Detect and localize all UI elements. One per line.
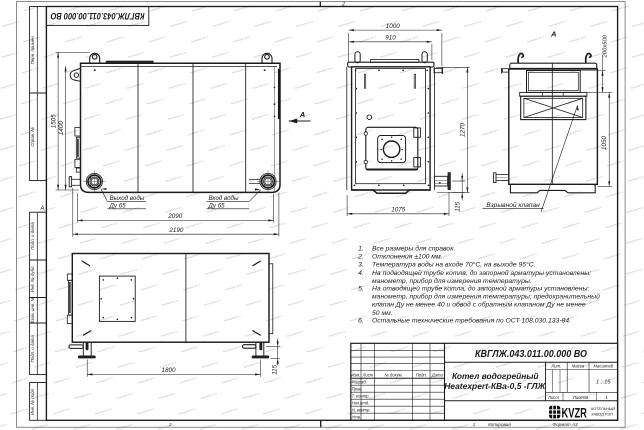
svg-text:KVZR: KVZR <box>562 405 588 420</box>
svg-text:1.: 1. <box>358 246 364 253</box>
svg-text:Нач.отд.: Нач.отд. <box>352 401 370 406</box>
svg-text:2.: 2. <box>357 254 364 261</box>
svg-text:3.: 3. <box>358 262 364 269</box>
svg-text:Пров.: Пров. <box>352 387 363 392</box>
svg-text:Перв. примен.: Перв. примен. <box>30 35 35 64</box>
svg-text:2: 2 <box>168 422 172 427</box>
svg-text:Остальные технические требован: Остальные технические требования по ОСТ … <box>372 316 571 324</box>
svg-text:4.: 4. <box>358 270 364 277</box>
svg-text:Все размеры для справок.: Все размеры для справок. <box>372 245 455 253</box>
svg-text:Формат А3: Формат А3 <box>552 422 578 427</box>
svg-text:Изм.: Изм. <box>351 373 360 378</box>
svg-text:2090: 2090 <box>167 213 183 220</box>
svg-text:910: 910 <box>385 35 396 42</box>
svg-text:1505: 1505 <box>51 114 58 129</box>
svg-text:КВГЛЖ.043.011.00.000 ВО: КВГЛЖ.043.011.00.000 ВО <box>51 11 145 21</box>
svg-text:Вход воды: Вход воды <box>209 195 239 202</box>
svg-text:клапан Ду не менее 40 и обвод: клапан Ду не менее 40 и обвод с обратным… <box>372 301 586 309</box>
svg-text:Ду 65: Ду 65 <box>208 203 226 210</box>
svg-text:6.: 6. <box>358 317 364 324</box>
svg-text:Температура воды на входе 70°С: Температура воды на входе 70°С, на выход… <box>372 261 536 269</box>
svg-text:2: 2 <box>341 2 345 8</box>
svg-text:ЗАВОД РЭП: ЗАВОД РЭП <box>591 412 613 416</box>
svg-text:Инв. № подл.: Инв. № подл. <box>30 388 35 415</box>
svg-text:Утв.: Утв. <box>352 415 362 420</box>
svg-text:1: 1 <box>473 422 476 427</box>
svg-text:1 : 15: 1 : 15 <box>596 380 611 386</box>
svg-text:Ду 65: Ду 65 <box>109 203 127 210</box>
svg-text:А: А <box>550 29 556 38</box>
svg-text:манометр, прибор для измерения: манометр, прибор для измерения температу… <box>372 293 600 301</box>
svg-text:115: 115 <box>273 364 279 374</box>
svg-text:200х500: 200х500 <box>603 34 609 58</box>
svg-text:Масштаб: Масштаб <box>594 364 614 369</box>
svg-text:50 мм.: 50 мм. <box>372 310 393 317</box>
svg-text:Лит.: Лит. <box>550 364 561 369</box>
svg-text:КВГЛЖ.043.011.00.000 ВО: КВГЛЖ.043.011.00.000 ВО <box>475 349 587 360</box>
svg-text:1400: 1400 <box>58 121 65 136</box>
svg-text:На отводящей трубе котла, до з: На отводящей трубе котла, до запорной ар… <box>372 285 589 293</box>
svg-text:1000: 1000 <box>386 23 401 30</box>
svg-text:Котел водогрейный: Котел водогрейный <box>452 371 539 381</box>
svg-text:Взам. инв. №: Взам. инв. № <box>30 296 35 323</box>
svg-text:Подп.: Подп. <box>416 373 427 378</box>
svg-text:Копировал: Копировал <box>488 422 511 427</box>
svg-text:Справ. №: Справ. № <box>30 127 35 147</box>
svg-text:2190: 2190 <box>168 227 184 234</box>
svg-text:Н. контр.: Н. контр. <box>352 408 371 413</box>
svg-text:5.: 5. <box>358 286 364 293</box>
svg-text:1800: 1800 <box>161 367 176 374</box>
svg-text:На подводящей трубе котла, до: На подводящей трубе котла, до запорной а… <box>372 269 591 277</box>
svg-text:1: 1 <box>605 395 608 400</box>
svg-text:КОТЕЛЬНЫЙ: КОТЕЛЬНЫЙ <box>591 407 615 411</box>
svg-text:1270: 1270 <box>459 122 466 137</box>
svg-text:Отклонения ±100 мм.: Отклонения ±100 мм. <box>372 254 443 261</box>
svg-text:Лист: Лист <box>362 373 374 378</box>
svg-text:Подп. и дата: Подп. и дата <box>30 335 35 363</box>
svg-text:№ докум.: № докум. <box>384 373 402 378</box>
svg-text:Разраб.: Разраб. <box>352 380 367 385</box>
svg-text:А: А <box>299 110 305 119</box>
svg-text:1050: 1050 <box>601 136 608 151</box>
svg-text:Лист: Лист <box>547 395 559 400</box>
svg-text:Heatexpert-КВа-0,5 -ГЛЖ: Heatexpert-КВа-0,5 -ГЛЖ <box>444 381 546 391</box>
svg-text:Масса: Масса <box>572 364 585 369</box>
svg-text:Выход воды: Выход воды <box>110 195 145 202</box>
svg-text:Подп. и дата: Подп. и дата <box>30 222 35 250</box>
svg-text:Инв. № дубл.: Инв. № дубл. <box>30 265 35 292</box>
svg-text:А: А <box>39 206 44 212</box>
svg-text:Листов: Листов <box>572 395 589 400</box>
svg-text:1075: 1075 <box>391 207 406 214</box>
svg-text:Т. контр.: Т. контр. <box>352 394 370 399</box>
svg-text:Взрывной клапан: Взрывной клапан <box>486 201 540 209</box>
svg-text:Дата: Дата <box>431 373 444 378</box>
svg-text:манометр, прибор для измерения: манометр, прибор для измерения температу… <box>372 277 532 285</box>
svg-text:115: 115 <box>455 201 461 211</box>
